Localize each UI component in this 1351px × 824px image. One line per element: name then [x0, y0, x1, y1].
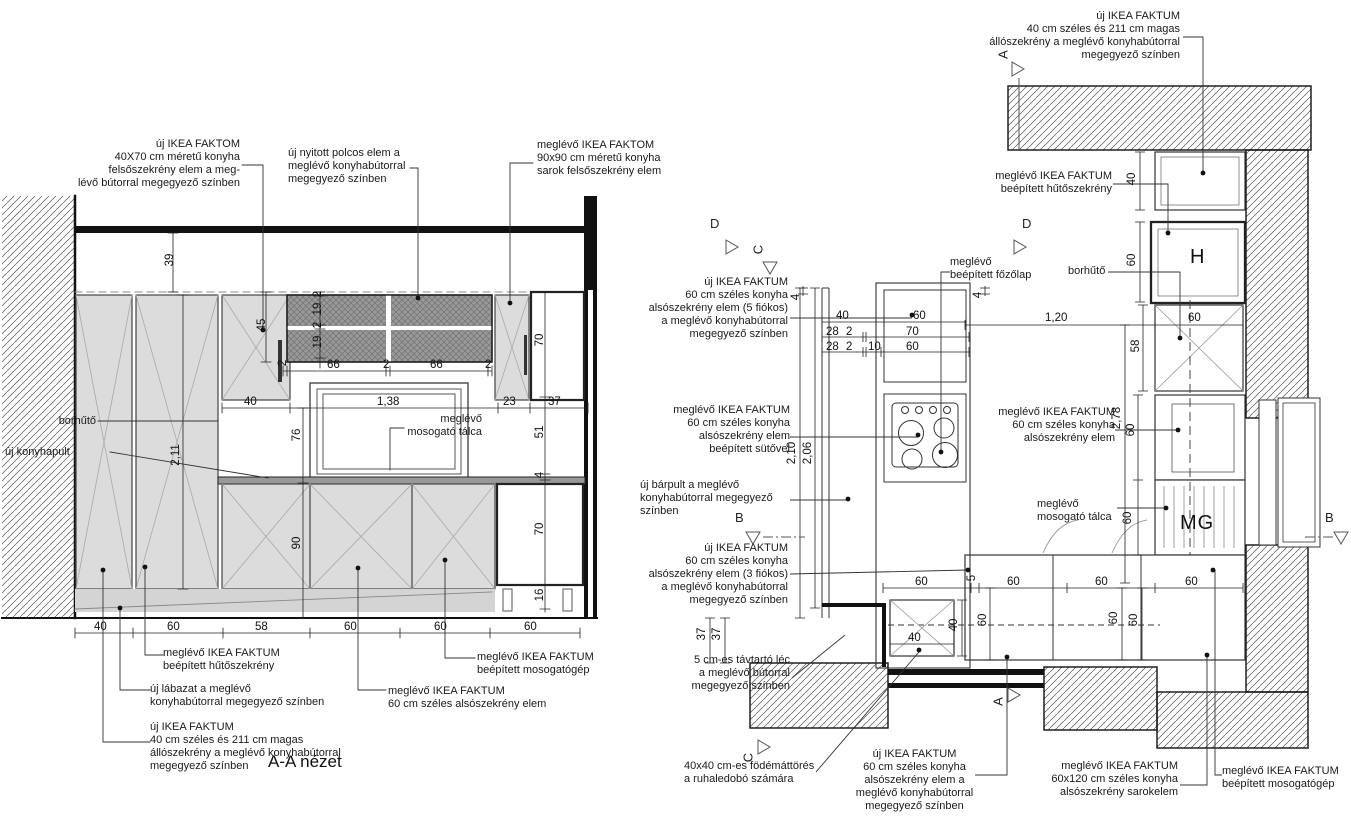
dim-plan-4a: 4	[790, 277, 802, 317]
annotation-new-base-cabinet: új IKEA FAKTUM 60 cm széles konyha alsós…	[852, 748, 977, 813]
dim-bot-60a: 60	[915, 576, 928, 588]
annotation-drawer5-cabinet: új IKEA FAKTUM 60 cm széles konyha alsós…	[640, 276, 788, 341]
annotation-spacer-batten: 5 cm-es távtartó léc a meglévő bútorral …	[648, 654, 790, 693]
dim-66a: 66	[327, 359, 340, 371]
section-letter-C2: C	[741, 738, 756, 778]
section-letter-C1: C	[751, 230, 766, 270]
dim-plan-40tall: 40	[1126, 159, 1138, 199]
kitchen-technical-drawing: új IKEA FAKTOM 40X70 cm méretű konyha fe…	[0, 0, 1351, 824]
label-plan-wine-fridge: borhűtő	[1068, 265, 1128, 278]
plan-sink-cabinet	[1155, 395, 1245, 480]
dim-66b: 66	[430, 359, 443, 371]
dim-h2b: 2	[383, 359, 389, 371]
annotation-fridge-elev: meglévő IKEA FAKTUM beépített hűtőszekré…	[163, 647, 303, 673]
dim-70b: 70	[534, 509, 546, 549]
dim-76: 76	[291, 415, 303, 455]
dim-v60c: 60	[1128, 600, 1140, 640]
elevation-title: A-A nézet	[268, 752, 342, 772]
dim-shelf-19b: 19	[312, 322, 324, 362]
annotation-sink-tray-elev: meglévő mosogató tálca	[398, 413, 482, 439]
dim-plan-120: 1,20	[1045, 312, 1067, 324]
ceiling-beam	[75, 226, 596, 233]
dim-16: 16	[534, 575, 546, 615]
annotation-corner-base-cabinet: meglévő IKEA FAKTUM 60x120 cm széles kon…	[1040, 760, 1178, 799]
annotation-open-shelf: új nyitott polcos elem a meglévő konyhab…	[288, 147, 438, 186]
plan-window	[1259, 398, 1320, 547]
section-letter-A2: A	[991, 682, 1006, 722]
wall-section-left	[2, 196, 75, 618]
dim-m40: 40	[244, 396, 257, 408]
dim-51: 51	[534, 412, 546, 452]
dim-bot-60c: 60	[1095, 576, 1108, 588]
dim-plan-60fridge: 60	[1126, 240, 1138, 280]
dim-4: 4	[534, 455, 546, 495]
section-letter-B2: B	[1325, 510, 1334, 525]
dim-plan-210: 2,10	[786, 433, 798, 473]
dim-row1-40: 40	[836, 310, 849, 322]
dim-chute-40b: 40	[948, 605, 960, 645]
label-dishwasher-MG: MG	[1180, 512, 1214, 535]
annotation-upper-cabinet-40: új IKEA FAKTOM 40X70 cm méretű konyha fe…	[55, 138, 240, 190]
section-letter-B1: B	[735, 510, 744, 525]
dim-23: 23	[503, 396, 516, 408]
dim-b60a: 60	[167, 621, 180, 633]
dim-row2-28: 28	[826, 326, 839, 338]
dim-sink-60b: 60	[1122, 498, 1134, 538]
dim-39: 39	[164, 240, 176, 280]
annotation-plan-fridge: meglévő IKEA FAKTUM beépített hűtőszekré…	[970, 170, 1112, 196]
plan-tall-cabinet	[1155, 152, 1245, 210]
dim-sink-60a: 60	[1125, 410, 1137, 450]
label-wine-fridge: borhűtő	[20, 415, 96, 428]
annotation-plan-dishwasher: meglévő IKEA FAKTUM beépített mosogatógé…	[1222, 765, 1347, 791]
annotation-cooktop: meglévő beépített főzőlap	[950, 256, 1060, 282]
dim-plan-60bor: 60	[1188, 312, 1201, 324]
dim-row1-60: 60	[913, 310, 926, 322]
annotation-drawer3-cabinet: új IKEA FAKTUM 60 cm széles konyha alsós…	[640, 542, 788, 607]
dim-row2-2: 2	[846, 326, 852, 338]
dim-90: 90	[291, 523, 303, 563]
dim-b60b: 60	[344, 621, 357, 633]
plan-bottom-cabinets	[965, 555, 1245, 660]
dim-chute-40a: 40	[908, 632, 921, 644]
dim-v60a: 60	[977, 600, 989, 640]
dim-211: 2,11	[170, 435, 182, 475]
tall-cabinets	[76, 295, 218, 589]
annotation-corner-upper: meglévő IKEA FAKTOM 90x90 cm méretű kony…	[537, 139, 697, 178]
label-fridge-H: H	[1190, 246, 1205, 269]
annotation-dishwasher-elev: meglévő IKEA FAKTUM beépített mosogatógé…	[477, 651, 627, 677]
annotation-plan-base-cabinet: meglévő IKEA FAKTUM 60 cm széles konyha …	[975, 406, 1115, 445]
dim-bot-60d: 60	[1185, 576, 1198, 588]
dim-plan-58: 58	[1130, 326, 1142, 366]
annotation-oven-cabinet: meglévő IKEA FAKTUM 60 cm széles konyha …	[645, 404, 790, 456]
dim-row3-10: 10	[868, 341, 881, 353]
section-letter-A1: A	[996, 35, 1011, 75]
dim-row3-60: 60	[906, 341, 919, 353]
plan-drawer-cabinet	[884, 290, 966, 382]
section-letter-D2: D	[1022, 216, 1031, 231]
dim-37: 37	[548, 396, 561, 408]
dim-row2-70: 70	[906, 326, 919, 338]
base-cabinets	[222, 484, 495, 589]
annotation-plan-tall-cabinet: új IKEA FAKTUM 40 cm széles és 211 cm ma…	[920, 10, 1180, 62]
dim-b58: 58	[255, 621, 268, 633]
spacer-batten	[822, 605, 884, 667]
dim-bot-60b: 60	[1007, 576, 1020, 588]
dim-shelf-h2a: 2	[277, 343, 289, 383]
dim-45: 45	[256, 305, 268, 345]
dim-b60c: 60	[434, 621, 447, 633]
annotation-plinth: új lábazat a meglévő konyhabútorral mege…	[150, 683, 360, 709]
plan-oven-cabinet	[884, 394, 966, 482]
label-new-worktop: új konyhapult	[5, 446, 109, 459]
dim-plan-206: 2,06	[802, 433, 814, 473]
dim-b40: 40	[94, 621, 107, 633]
dim-h2c: 2	[485, 359, 491, 371]
cooktop	[892, 403, 958, 469]
section-letter-D1: D	[710, 216, 719, 231]
annotation-bar-counter: új bárpult a meglévő konyhabútorral mege…	[640, 479, 795, 518]
dim-row3-28: 28	[826, 341, 839, 353]
dim-row3-2: 2	[846, 341, 852, 353]
annotation-plan-sink-tray: meglévő mosogató tálca	[1037, 498, 1119, 524]
dim-b60d: 60	[524, 621, 537, 633]
dim-bot-5: 5	[966, 558, 978, 598]
dim-plan-4b: 4	[972, 275, 984, 315]
dim-70a: 70	[534, 320, 546, 360]
annotation-base-cabinet-elev: meglévő IKEA FAKTUM 60 cm széles alsósze…	[388, 685, 588, 711]
dim-plan-278: 2,78	[1111, 398, 1123, 438]
dim-37b: 37	[711, 614, 723, 654]
dim-138: 1,38	[377, 396, 399, 408]
dim-v60b: 60	[1108, 598, 1120, 638]
dim-37a: 37	[696, 614, 708, 654]
